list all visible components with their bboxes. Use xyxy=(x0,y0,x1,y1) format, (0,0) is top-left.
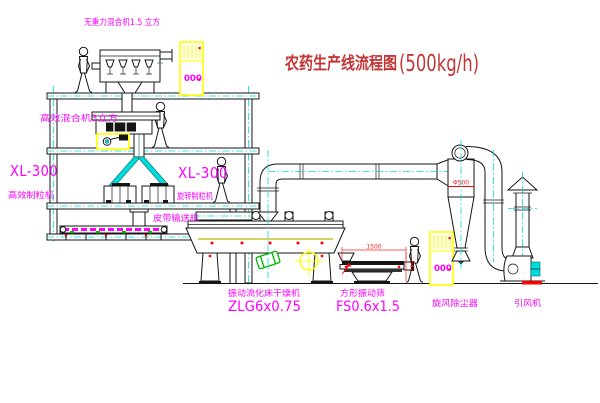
cyclone-diameter-dim: Φ500 xyxy=(453,180,469,187)
left-granulator-model: XL-300 xyxy=(10,162,58,180)
cabinet-display: 000 xyxy=(434,264,452,274)
left-granulator-label: 高效制粒机 xyxy=(8,190,55,201)
fan-label: 引风机 xyxy=(514,298,542,309)
granulator-left xyxy=(104,183,136,203)
cad-flow-diagram: 000 000 xyxy=(0,0,600,403)
y-split-chute xyxy=(110,157,169,185)
dryer-model-label: ZLG6x0.75 xyxy=(228,299,301,315)
fluid-bed-dryer xyxy=(186,212,354,285)
control-cabinet-right: 000 xyxy=(430,232,453,285)
granulator-right xyxy=(142,183,174,203)
fan-base-pad xyxy=(522,281,542,285)
page-title: 农药生产线流程图 xyxy=(284,53,397,74)
mixer-discharge-pipe xyxy=(122,93,132,112)
mid-granulator-label: 旋转制粒机 xyxy=(177,191,213,202)
mid-granulator-model: XL-300 xyxy=(178,164,228,182)
screen-length-dim: 1500 xyxy=(366,244,381,251)
mixer-down-pipe xyxy=(134,134,144,157)
cyclone-label: 旋风除尘器 xyxy=(432,298,479,309)
control-cabinet-top: 000 xyxy=(180,42,203,95)
person-figure xyxy=(75,47,92,92)
belt-conveyor-label: 皮带输送机 xyxy=(153,213,200,224)
screen-model-label: FS0.6x1.5 xyxy=(336,299,400,315)
pulley xyxy=(105,140,109,144)
dryer-discharge-funnel xyxy=(338,253,354,261)
floor2-mixer-label: 高效混合机3立方 xyxy=(40,113,118,124)
granulator-discharge-chute xyxy=(130,209,148,227)
top-mixer-label: 无重力混合机1.5 立方 xyxy=(84,17,160,28)
induced-draft-fan xyxy=(500,256,545,285)
screen-height-dim: 541 xyxy=(408,260,415,272)
title-capacity: (500kg/h) xyxy=(399,51,479,77)
drive-motor xyxy=(119,135,128,141)
screen-label: 方形振动筛 xyxy=(340,288,386,299)
person-figure xyxy=(152,102,169,147)
diagram-canvas: 000 000 xyxy=(0,0,600,403)
dryer-label: 振动流化床干燥机 xyxy=(228,288,301,299)
cabinet-display: 000 xyxy=(184,74,202,84)
vibrating-screen: 1500 541 xyxy=(340,244,415,285)
